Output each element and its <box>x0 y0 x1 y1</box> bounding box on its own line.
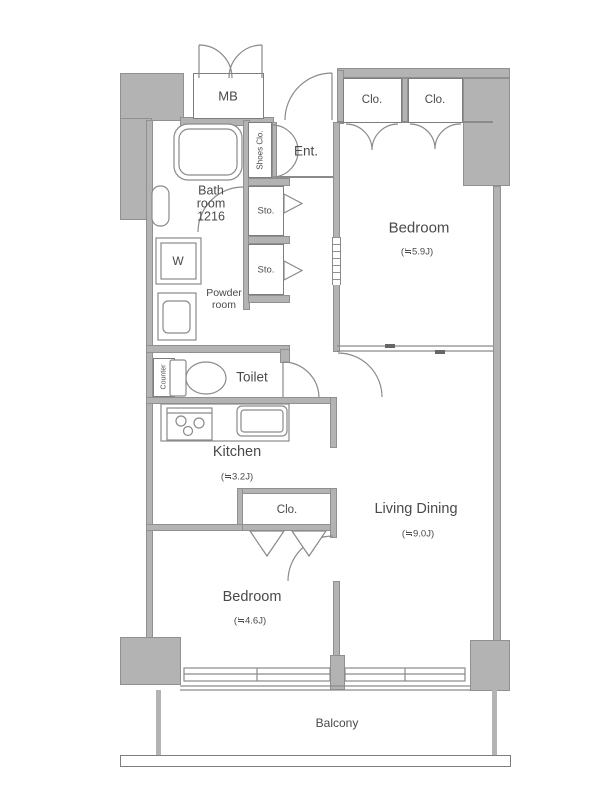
bathroom-label: Bath room 1216 <box>197 185 225 224</box>
balcony-wall <box>492 690 497 756</box>
wall <box>248 178 290 186</box>
living-dining-size: (≒9.0J) <box>402 529 434 540</box>
storage-door-mark <box>284 194 302 213</box>
wall <box>146 397 336 404</box>
partition-tick <box>385 344 395 348</box>
vanity <box>158 293 196 340</box>
entrance-label: Ent. <box>294 144 318 159</box>
partition-tick <box>435 350 445 354</box>
wall <box>237 488 337 494</box>
bedroom-top-label: Bedroom <box>389 220 450 237</box>
wall <box>463 78 510 186</box>
wall-line <box>277 176 333 178</box>
wall <box>470 640 510 691</box>
wall <box>120 637 181 685</box>
storage-label: Sto. <box>258 206 275 217</box>
kitchen-size: (≒3.2J) <box>221 472 253 483</box>
closet-label: Clo. <box>362 94 382 106</box>
wall <box>493 186 501 691</box>
balcony-railing <box>120 755 511 767</box>
floor-plan: MB Clo. Clo. Ent. Shoes Clo. Bath room 1… <box>0 0 600 800</box>
balcony-wall <box>156 690 161 756</box>
storage-label: Sto. <box>258 265 275 276</box>
living-door-arc <box>338 353 382 397</box>
wall <box>330 397 337 448</box>
kitchen-counter <box>161 404 289 441</box>
window-living <box>345 668 465 681</box>
sliding-partition <box>337 346 493 351</box>
storage-door-mark <box>284 261 302 280</box>
bath-basin <box>152 186 169 226</box>
sill-line <box>180 686 470 690</box>
counter-label: Counter <box>161 365 168 390</box>
closet-label: Clo. <box>425 94 445 106</box>
kitchen-label: Kitchen <box>213 444 261 460</box>
bedroom-bottom-size: (≒4.6J) <box>234 616 266 627</box>
wall-window-hatch <box>332 237 341 285</box>
closet-bifold-mark <box>250 531 284 556</box>
bedroom-top-size: (≒5.9J) <box>401 247 433 258</box>
toilet-label: Toilet <box>236 370 268 385</box>
living-dining-label: Living Dining <box>374 501 457 517</box>
wall <box>120 73 184 121</box>
wall <box>146 345 290 353</box>
closet-door-arcs <box>346 124 398 150</box>
wall <box>272 122 277 178</box>
bedroom-bottom-label: Bedroom <box>223 589 282 605</box>
wall <box>280 349 290 363</box>
wall <box>248 236 290 244</box>
bathtub <box>174 124 242 180</box>
wall <box>337 68 510 78</box>
wall <box>330 488 337 538</box>
washer-label: W <box>172 254 183 268</box>
closet-label: Clo. <box>277 504 297 516</box>
shoes-closet-label: Shoes Clo. <box>256 130 265 169</box>
kitchen-sink <box>237 406 287 436</box>
wall <box>237 524 337 531</box>
bedroom-door-arc <box>288 536 333 581</box>
wall <box>248 295 290 303</box>
stove <box>167 408 212 440</box>
mb-label: MB <box>218 89 238 104</box>
wall <box>146 120 153 638</box>
toilet-door-arc <box>283 362 319 398</box>
powder-room-label: Powder room <box>206 287 242 311</box>
entrance-door-arc <box>285 73 332 120</box>
closet-bifold-mark <box>292 531 326 556</box>
wall <box>146 524 243 531</box>
balcony-label: Balcony <box>316 716 359 730</box>
closet-door-arcs <box>410 124 461 149</box>
window-bedroom <box>184 668 330 681</box>
wall <box>330 655 345 690</box>
